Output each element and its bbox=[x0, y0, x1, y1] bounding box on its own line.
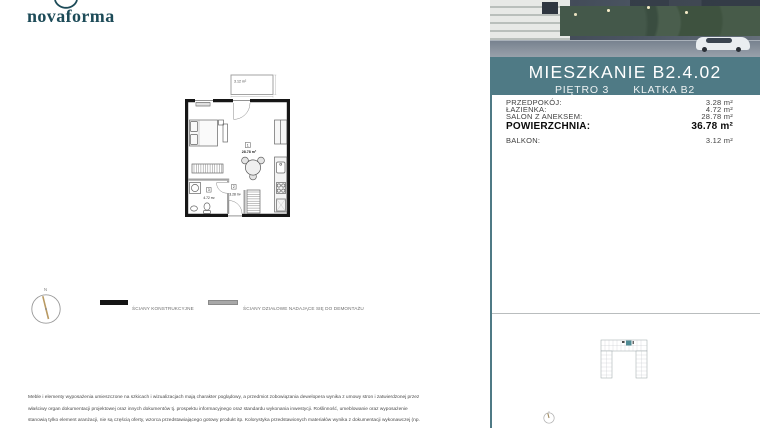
hero-photo bbox=[490, 0, 760, 57]
building-key-plan bbox=[598, 337, 650, 383]
plan-balcony: 3.12 m² bbox=[231, 75, 276, 98]
area-label: POWIERZCHNIA: bbox=[506, 122, 590, 133]
accent-vertical-line bbox=[490, 95, 492, 428]
hero-building-opening bbox=[542, 2, 558, 14]
horizontal-divider bbox=[492, 313, 760, 314]
key-plan-core bbox=[622, 341, 625, 343]
hero-streetlights bbox=[490, 0, 491, 1]
room3-number: 3 bbox=[208, 188, 210, 192]
legend-partition-label: ŚCIANY DZIAŁOWE NADAJĄCE SIĘ DO DEMONTAŻ… bbox=[243, 306, 364, 311]
key-plan-highlighted-unit bbox=[626, 341, 632, 346]
legend-structural-swatch bbox=[100, 300, 128, 305]
room2-number: 2 bbox=[233, 185, 235, 189]
area-row-total: POWIERZCHNIA: 36.78 m² bbox=[506, 122, 733, 133]
room1-number: 1 bbox=[247, 143, 249, 147]
apartment-card-page: novaforma 3.12 m² bbox=[0, 0, 760, 428]
legend-structural-label: ŚCIANY KONSTRUKCYJNE bbox=[132, 306, 194, 311]
hero-car-window bbox=[706, 38, 732, 43]
hero-car-wheel bbox=[736, 47, 741, 52]
balcony-area-label: 3.12 m² bbox=[234, 80, 247, 84]
area-value: 3.12 m² bbox=[706, 137, 733, 144]
area-value: 36.78 m² bbox=[691, 122, 733, 133]
mini-compass bbox=[541, 405, 557, 427]
toilet bbox=[204, 203, 210, 210]
area-row: SALON Z ANEKSEM: 28.78 m² bbox=[506, 113, 733, 120]
room1-area: 28.78 m² bbox=[242, 150, 257, 154]
area-list: PRZEDPOKÓJ: 3.28 m² ŁAZIENKA: 4.72 m² SA… bbox=[506, 99, 733, 144]
bed bbox=[190, 120, 218, 146]
unit-floor: PIĘTRO 3 bbox=[555, 84, 609, 96]
disclaimer-line: stanowią tylko element aranżacji, nie są… bbox=[28, 416, 420, 423]
unit-header: MIESZKANIE B2.4.02 PIĘTRO 3 KLATKA B2 bbox=[490, 57, 760, 95]
bathroom-sink bbox=[191, 206, 198, 211]
wardrobe-hatched bbox=[192, 164, 223, 173]
hero-car bbox=[696, 37, 750, 50]
wardrobe-hatched bbox=[247, 190, 260, 213]
hero-trees bbox=[560, 6, 760, 36]
area-value: 28.78 m² bbox=[701, 113, 733, 120]
room2-area: 3.28 m² bbox=[229, 193, 241, 197]
hero-building bbox=[490, 0, 570, 44]
unit-staircase: KLATKA B2 bbox=[633, 84, 695, 96]
floor-plan: 3.12 m² bbox=[183, 72, 296, 224]
brand-logo-text: novaforma bbox=[27, 6, 115, 27]
hero-car-wheel bbox=[702, 47, 707, 52]
mini-compass-needle bbox=[548, 413, 549, 418]
round-table bbox=[245, 160, 260, 175]
unit-title: MIESZKANIE B2.4.02 bbox=[490, 62, 760, 83]
compass: N bbox=[25, 285, 67, 327]
compass-needle bbox=[43, 296, 49, 319]
room3-area: 4.72 m² bbox=[203, 196, 215, 200]
area-label: SALON Z ANEKSEM: bbox=[506, 113, 583, 120]
entry-door-opening bbox=[228, 213, 242, 217]
key-plan-core bbox=[633, 341, 635, 344]
compass-north-label: N bbox=[44, 287, 47, 292]
disclaimer-text: Meble i elementy wyposażenia umieszczone… bbox=[28, 393, 681, 428]
disclaimer-line: Meble i elementy wyposażenia umieszczone… bbox=[28, 393, 420, 400]
legend-partition-swatch bbox=[208, 300, 238, 305]
area-row: BALKON: 3.12 m² bbox=[506, 137, 733, 144]
tv-console bbox=[223, 124, 228, 142]
disclaimer-line: właściwy organ dokumentacji projektowej … bbox=[28, 405, 420, 412]
area-label: BALKON: bbox=[506, 137, 540, 144]
